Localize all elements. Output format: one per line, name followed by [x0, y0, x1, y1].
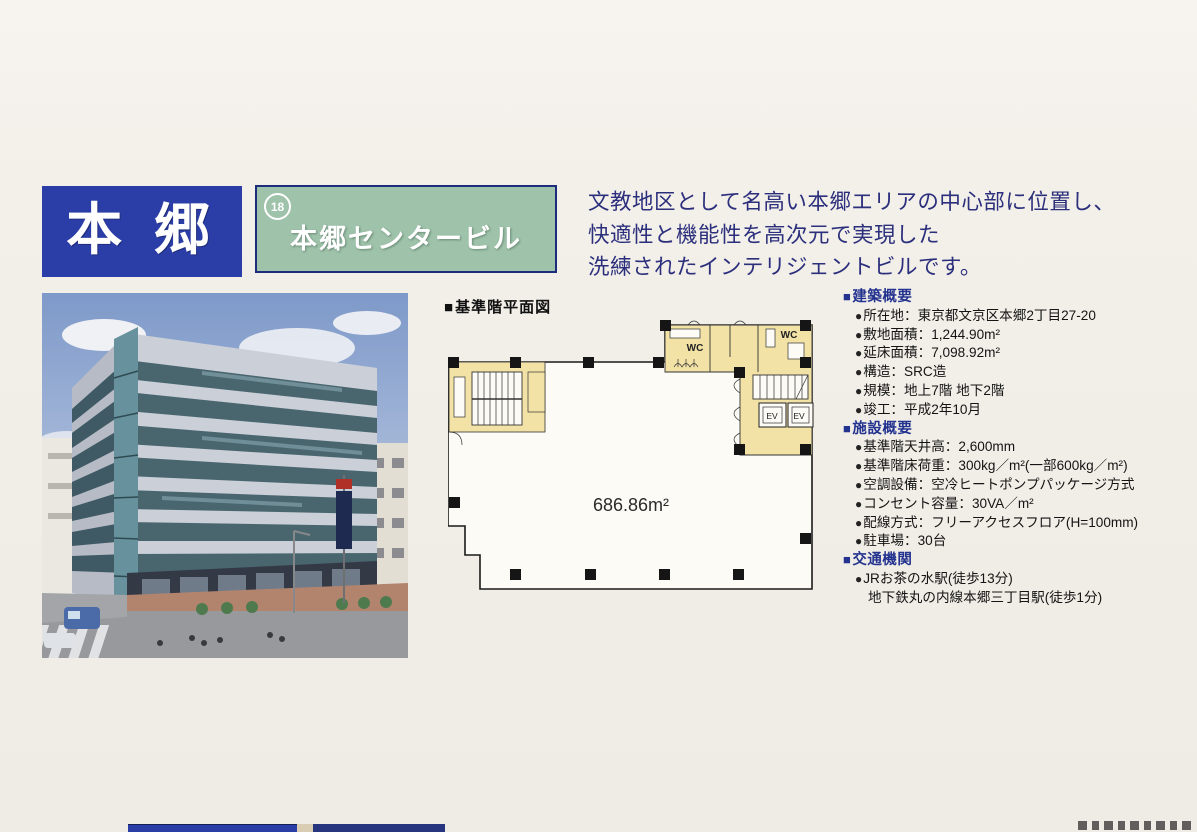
- spec-item: ●所在地：東京都文京区本郷2丁目27-20: [855, 307, 1197, 326]
- spec-item: ●構造：SRC造: [855, 363, 1197, 382]
- spec-item: ●基準階床荷重：300kg／m²(一部600kg／m²): [855, 457, 1197, 476]
- spec-item: ●配線方式：フリーアクセスフロア(H=100mm): [855, 514, 1197, 533]
- bullet-icon: ●: [855, 403, 862, 417]
- bullet-icon: ●: [855, 328, 862, 342]
- section-heading-facility: ■施設概要: [843, 420, 1197, 439]
- bullet-icon: ●: [855, 459, 862, 473]
- spec-item: ●規模：地上7階 地下2階: [855, 382, 1197, 401]
- next-page-blue-bar: [313, 824, 445, 832]
- photo-main-building: [72, 327, 377, 605]
- description-line: 文教地区として名高い本郷エリアの中心部に位置し、: [588, 186, 1188, 219]
- building-photo: [42, 293, 408, 658]
- next-page-blue-bar: [128, 824, 297, 832]
- district-title: 本 郷: [66, 202, 218, 258]
- spec-item: ●敷地面積：1,244.90m²: [855, 326, 1197, 345]
- bullet-icon: ●: [855, 478, 862, 492]
- floor-plan-title: ■基準階平面図: [444, 296, 551, 317]
- building-name: 本郷センタービル: [257, 217, 555, 256]
- building-number-badge: 18: [264, 193, 291, 220]
- square-marker-icon: ■: [444, 299, 454, 316]
- architecture-items: ●所在地：東京都文京区本郷2丁目27-20 ●敷地面積：1,244.90m² ●…: [843, 307, 1197, 420]
- plan-area-label: 686.86m²: [593, 495, 669, 515]
- specs-column: ■建築概要 ●所在地：東京都文京区本郷2丁目27-20 ●敷地面積：1,244.…: [843, 288, 1197, 608]
- bullet-icon: ●: [855, 534, 862, 548]
- bullet-icon: ●: [855, 365, 862, 379]
- bullet-icon: ●: [855, 497, 862, 511]
- bullet-icon: ●: [855, 309, 862, 323]
- bullet-icon: ●: [855, 516, 862, 530]
- square-marker-icon: ■: [843, 288, 851, 307]
- brochure-page: 本 郷 18 本郷センタービル 文教地区として名高い本郷エリアの中心部に位置し、…: [0, 0, 1197, 832]
- spec-item: ●延床面積：7,098.92m²: [855, 344, 1197, 363]
- description-line: 快適性と機能性を高次元で実現した: [588, 219, 1188, 252]
- district-title-box: 本 郷: [42, 186, 242, 277]
- plan-wc-label: WC: [781, 330, 798, 341]
- floor-plan: WC WC EV EV 686.86m²: [448, 315, 830, 600]
- next-page-bar-gap: [297, 824, 313, 832]
- cropped-text-fragment: [1078, 821, 1196, 830]
- spec-item: ●JRお茶の水駅(徒歩13分): [855, 570, 1197, 589]
- building-name-box: 18 本郷センタービル: [255, 185, 557, 273]
- square-marker-icon: ■: [843, 551, 851, 570]
- spec-item: ●基準階天井高：2,600mm: [855, 438, 1197, 457]
- square-marker-icon: ■: [843, 420, 851, 439]
- spec-item: 地下鉄丸の内線本郷三丁目駅(徒歩1分): [855, 589, 1197, 608]
- spec-item: ●駐車場：30台: [855, 532, 1197, 551]
- spec-item: ●竣工：平成2年10月: [855, 401, 1197, 420]
- building-description: 文教地区として名高い本郷エリアの中心部に位置し、 快適性と機能性を高次元で実現し…: [588, 186, 1188, 284]
- plan-wc-label: WC: [687, 343, 704, 354]
- bullet-icon: ●: [855, 572, 862, 586]
- section-heading-transport: ■交通機関: [843, 551, 1197, 570]
- description-line: 洗練されたインテリジェントビルです。: [588, 251, 1188, 284]
- section-heading-architecture: ■建築概要: [843, 288, 1197, 307]
- transport-items: ●JRお茶の水駅(徒歩13分) 地下鉄丸の内線本郷三丁目駅(徒歩1分): [843, 570, 1197, 608]
- plan-ev-label: EV: [793, 411, 805, 421]
- spec-item: ●コンセント容量：30VA／m²: [855, 495, 1197, 514]
- spec-item: ●空調設備：空冷ヒートポンプパッケージ方式: [855, 476, 1197, 495]
- facility-items: ●基準階天井高：2,600mm ●基準階床荷重：300kg／m²(一部600kg…: [843, 438, 1197, 551]
- plan-ev-label: EV: [766, 411, 778, 421]
- bullet-icon: ●: [855, 440, 862, 454]
- bullet-icon: ●: [855, 346, 862, 360]
- bullet-icon: ●: [855, 384, 862, 398]
